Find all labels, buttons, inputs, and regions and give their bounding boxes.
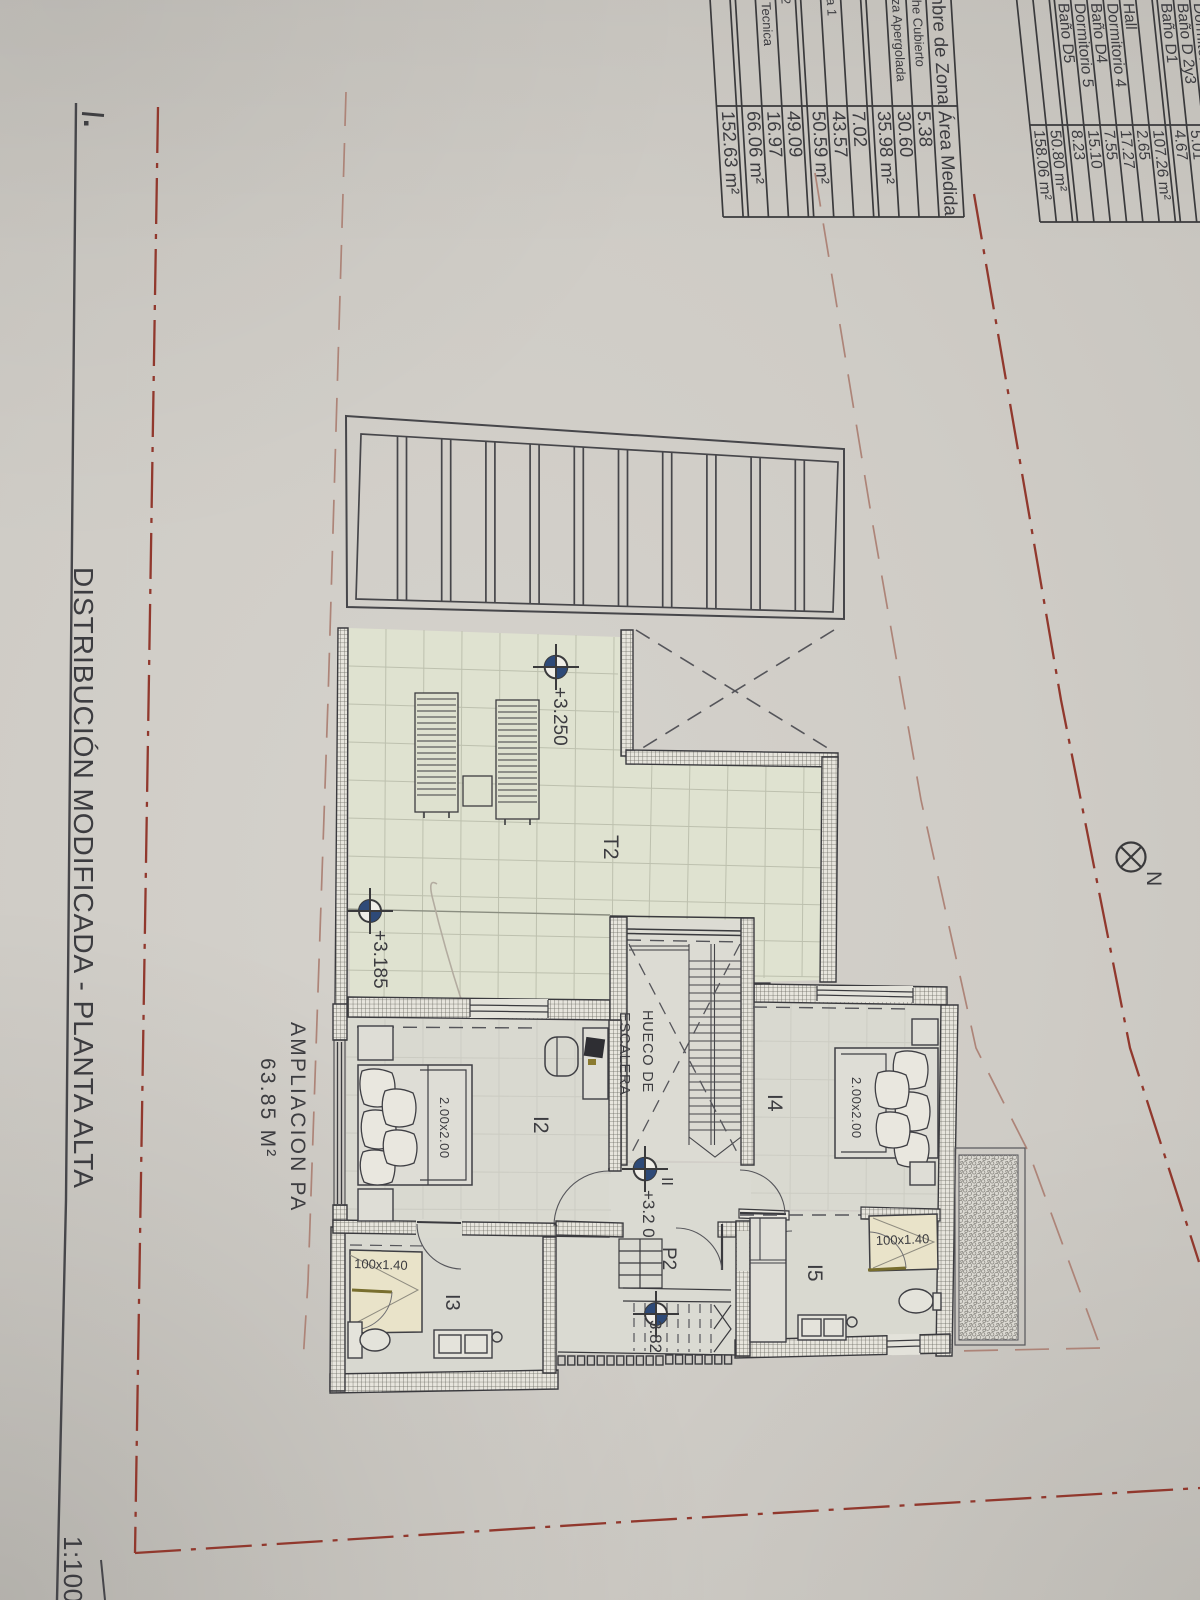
svg-text:8.23: 8.23 bbox=[1068, 130, 1088, 160]
svg-text:100x1.40: 100x1.40 bbox=[876, 1231, 930, 1248]
svg-text:N: N bbox=[1142, 871, 1165, 886]
svg-text:I2: I2 bbox=[529, 1116, 552, 1134]
svg-text:1:100: 1:100 bbox=[58, 1536, 88, 1600]
svg-text:100x1.40: 100x1.40 bbox=[354, 1256, 408, 1273]
svg-text:66.06 m²: 66.06 m² bbox=[743, 111, 768, 184]
svg-text:+3.250: +3.250 bbox=[549, 687, 570, 746]
svg-text:ESCALERA: ESCALERA bbox=[616, 1012, 632, 1096]
svg-text:II: II bbox=[658, 1177, 675, 1186]
svg-text:2.00x2.00: 2.00x2.00 bbox=[849, 1077, 864, 1139]
svg-text:T2: T2 bbox=[599, 835, 622, 860]
svg-text:I5: I5 bbox=[803, 1264, 826, 1282]
svg-text:P2: P2 bbox=[658, 1247, 679, 1270]
svg-text:Tecnica: Tecnica bbox=[759, 2, 777, 47]
svg-text:50.59 m²: 50.59 m² bbox=[808, 111, 833, 184]
svg-text:I4: I4 bbox=[763, 1094, 786, 1112]
svg-text:DISTRIBUCIÓN MODIFICADA - PLAN: DISTRIBUCIÓN MODIFICADA - PLANTA ALTA bbox=[68, 567, 99, 1189]
svg-text:+3.185: +3.185 bbox=[369, 930, 390, 989]
svg-text:HUECO DE: HUECO DE bbox=[639, 1010, 655, 1093]
svg-text:+3.2 0: +3.2 0 bbox=[639, 1190, 658, 1238]
svg-text:3.82: 3.82 bbox=[646, 1320, 665, 1353]
svg-text:AMPLIACION PA: AMPLIACION PA bbox=[286, 1022, 309, 1212]
svg-text:I3: I3 bbox=[441, 1294, 463, 1311]
svg-text:4.67: 4.67 bbox=[1170, 130, 1190, 160]
svg-text:2.00x2.00: 2.00x2.00 bbox=[437, 1097, 452, 1159]
svg-text:63.85 M²: 63.85 M² bbox=[256, 1058, 279, 1158]
svg-text:35.98 m²: 35.98 m² bbox=[874, 111, 899, 184]
